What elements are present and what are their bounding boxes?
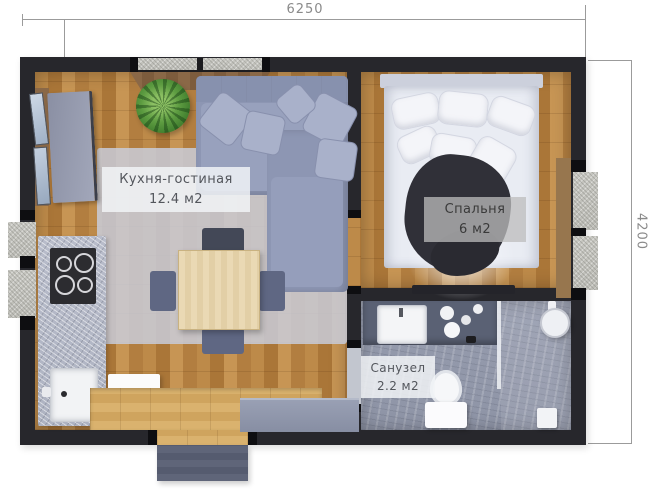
dimension-line-width [22,19,585,20]
dimension-label-height: 4200 [634,208,649,256]
entrance-porch [157,445,248,481]
cooktop-burner-2 [74,253,94,273]
floor-plan-canvas: 6250 4200 [0,0,649,502]
dining-chair-bottom [202,328,244,354]
partition-post-3 [347,340,361,348]
cooktop-burner-3 [55,275,75,295]
vanity-soap-dish [466,336,476,343]
right-wall-post-2 [571,228,586,236]
bathroom-door-opening [347,348,361,404]
window-post-left [130,57,138,72]
window-post-right [262,57,270,72]
room-name-bathroom: Санузел [367,359,429,377]
bathroom-sink [377,305,427,344]
toilet-tank [425,402,467,428]
dimension-tick-left [22,14,23,26]
living-room-window-top [138,58,262,72]
cooktop-burner-1 [56,256,72,272]
dining-chair-left [150,271,176,311]
dining-chair-right [259,271,285,311]
left-wall-panel-1 [8,222,36,258]
sofa-pillow-4 [313,137,358,182]
left-wall-post-3 [20,316,35,330]
bed-pillow-2 [436,89,489,128]
vanity-accessory-1 [440,306,454,320]
entrance-post-left [148,430,157,445]
room-area-bathroom: 2.2 м2 [367,377,429,395]
window-mullion [197,58,203,70]
right-wall-post-3 [571,288,586,300]
right-wall-panel-2 [573,236,598,290]
kitchen-faucet [42,387,51,397]
cooktop-burner-4 [77,277,93,293]
left-wall-post-2 [20,256,35,268]
sink-drain [61,391,67,397]
left-wall-panel-2 [8,270,36,318]
bathroom-faucet [399,308,403,317]
vanity-accessory-4 [473,304,483,314]
room-name-living: Кухня-гостиная [108,170,244,190]
dimension-extension-topright [585,5,586,57]
dining-table [178,250,260,330]
room-name-bedroom: Спальня [430,200,520,220]
right-wall-panel-1 [573,172,598,230]
dimension-line-height [631,60,632,444]
entrance-opening [157,430,248,445]
partition-post-1 [347,210,361,218]
shower-stool [537,408,557,428]
room-label-bedroom: Спальня 6 м2 [424,197,526,242]
dimension-extension-right-bottom [588,443,632,444]
foot-bench [412,285,515,294]
room-label-living: Кухня-гостиная 12.4 м2 [102,167,250,212]
room-label-bathroom: Санузел 2.2 м2 [361,356,435,398]
vanity-accessory-2 [461,315,471,325]
partition-post-2 [347,286,361,294]
left-wall-post-1 [20,210,35,220]
bedroom-window-reveal [556,158,571,298]
plant [136,79,190,133]
dimension-extension-right-top [588,60,632,61]
shower-head [540,308,570,338]
room-area-bedroom: 6 м2 [430,220,520,240]
entry-wardrobe [240,398,359,432]
dimension-label-width: 6250 [283,2,327,17]
dimension-extension-left [64,19,65,57]
tv-panel [47,91,98,203]
building-outline: Кухня-гостиная 12.4 м2 Спальня 6 м2 Сану… [20,57,586,445]
entrance-post-right [248,430,257,445]
sofa-pillow-2 [239,109,286,156]
right-wall-post-1 [571,160,586,172]
bedroom-door-opening [347,218,361,286]
room-area-living: 12.4 м2 [108,190,244,210]
cooktop [50,248,96,304]
vanity-accessory-3 [444,322,460,338]
